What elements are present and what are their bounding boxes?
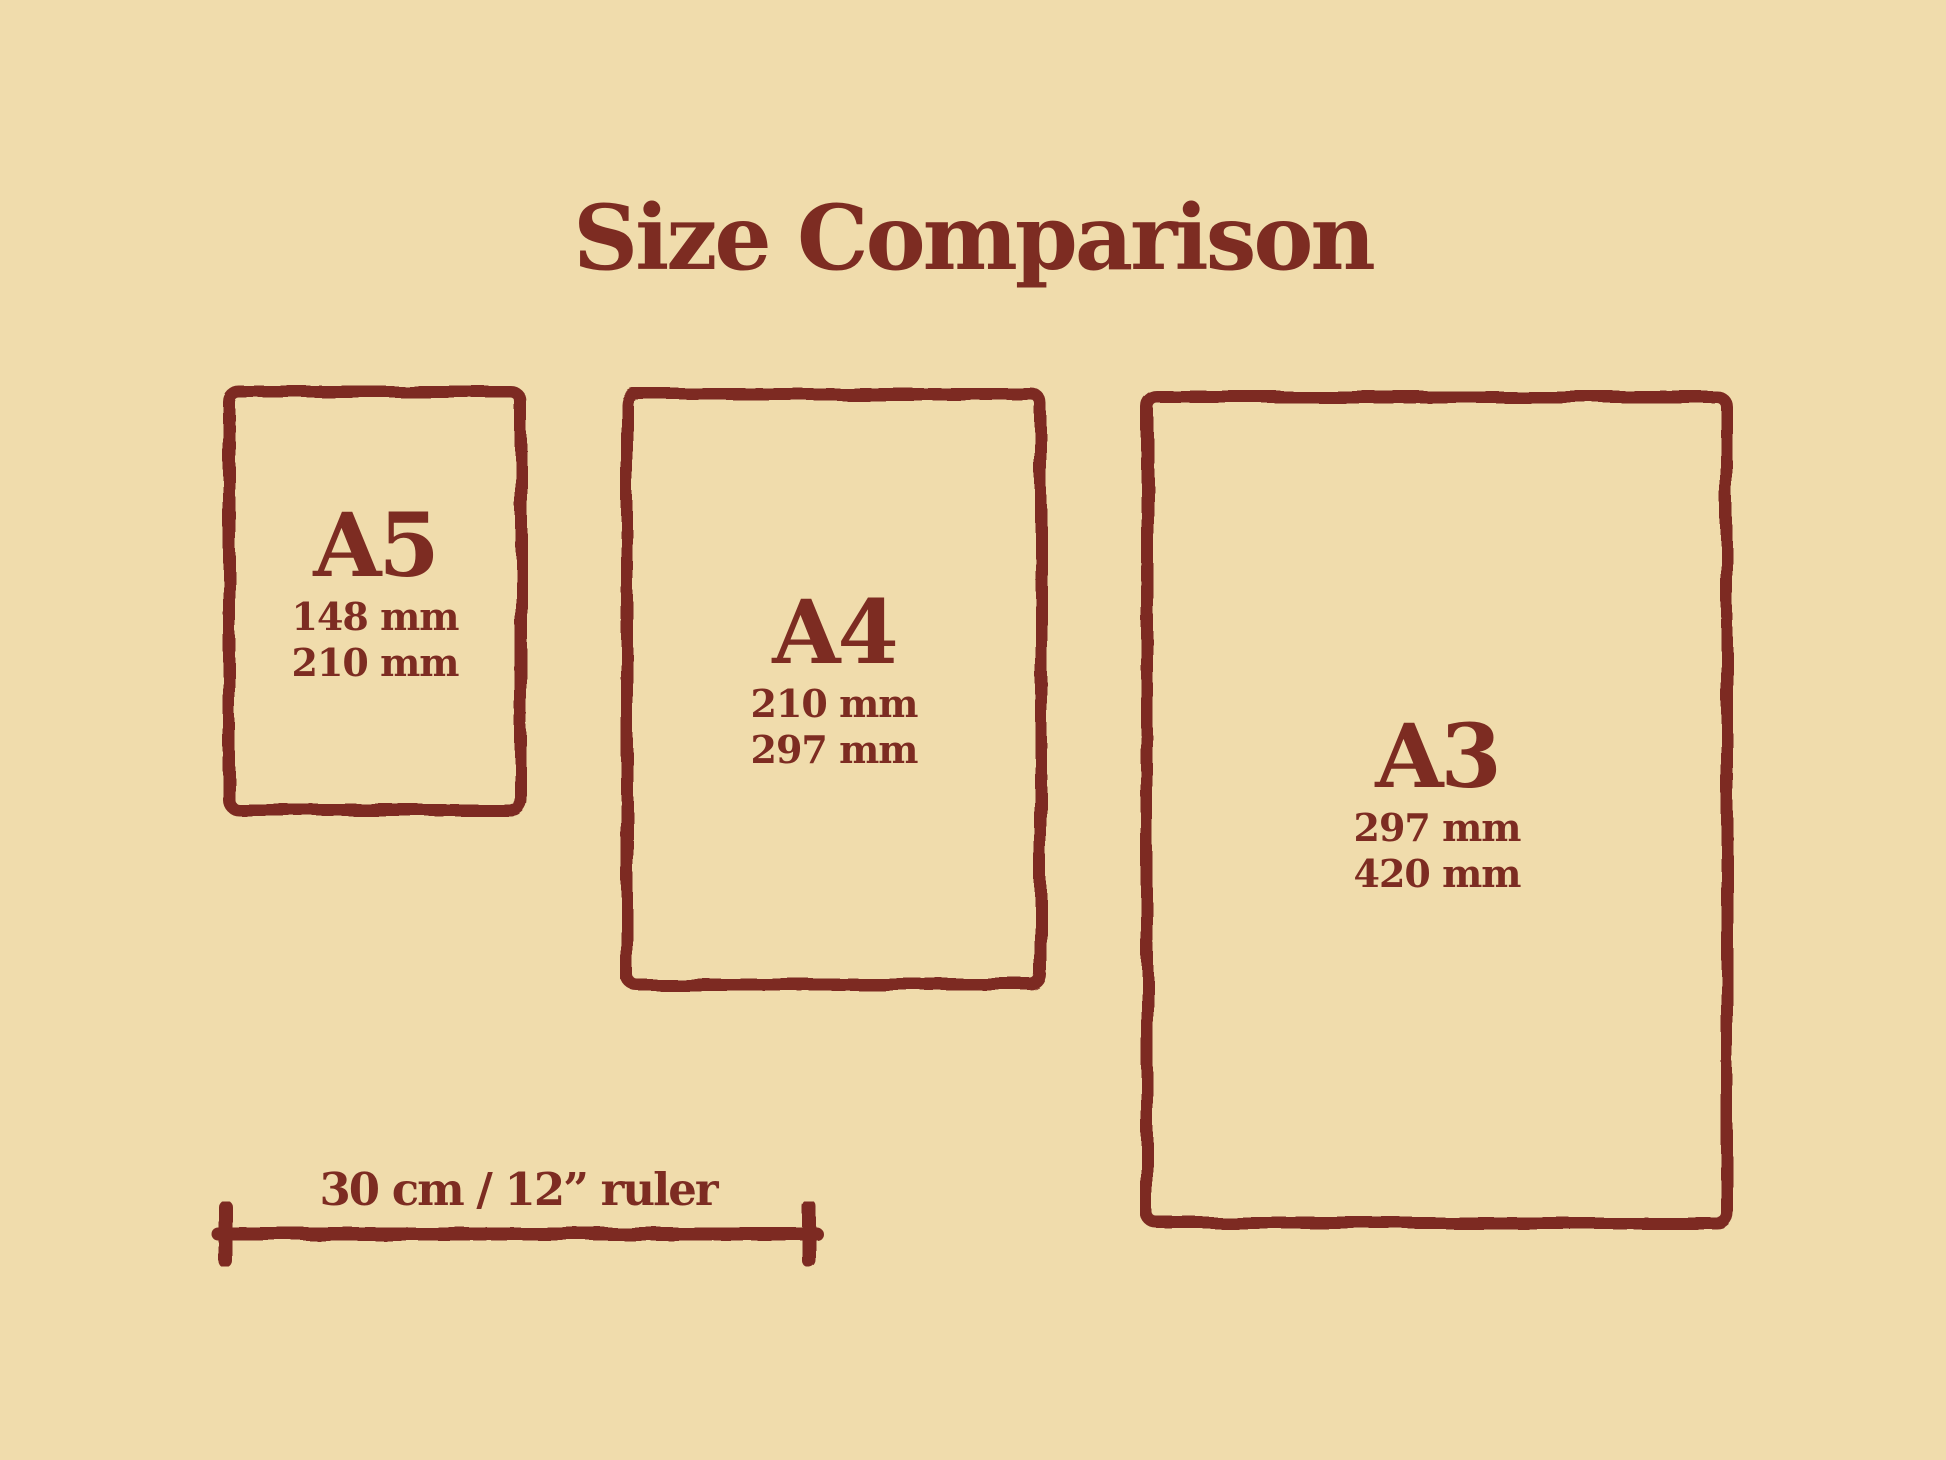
paper-a5-name: A5 xyxy=(222,500,528,590)
paper-a5-width: 148 mm xyxy=(222,594,528,640)
page-title: Size Comparison xyxy=(0,193,1946,283)
ruler-graphic xyxy=(205,1190,830,1280)
paper-a4-label-block: A4 210 mm 297 mm xyxy=(620,587,1048,773)
paper-a4: A4 210 mm 297 mm xyxy=(620,387,1048,992)
paper-a4-width: 210 mm xyxy=(620,681,1048,727)
paper-a3-label-block: A3 297 mm 420 mm xyxy=(1140,711,1734,897)
paper-a3-width: 297 mm xyxy=(1140,805,1734,851)
paper-a4-name: A4 xyxy=(620,587,1048,677)
paper-a3-height: 420 mm xyxy=(1140,851,1734,897)
paper-a3-name: A3 xyxy=(1140,711,1734,801)
size-comparison-diagram: Size Comparison A5 148 mm 210 mm xyxy=(0,0,1946,1460)
paper-a5-label-block: A5 148 mm 210 mm xyxy=(222,500,528,686)
paper-a5: A5 148 mm 210 mm xyxy=(222,385,528,817)
paper-a4-height: 297 mm xyxy=(620,727,1048,773)
paper-a3: A3 297 mm 420 mm xyxy=(1140,390,1734,1230)
paper-a5-height: 210 mm xyxy=(222,640,528,686)
